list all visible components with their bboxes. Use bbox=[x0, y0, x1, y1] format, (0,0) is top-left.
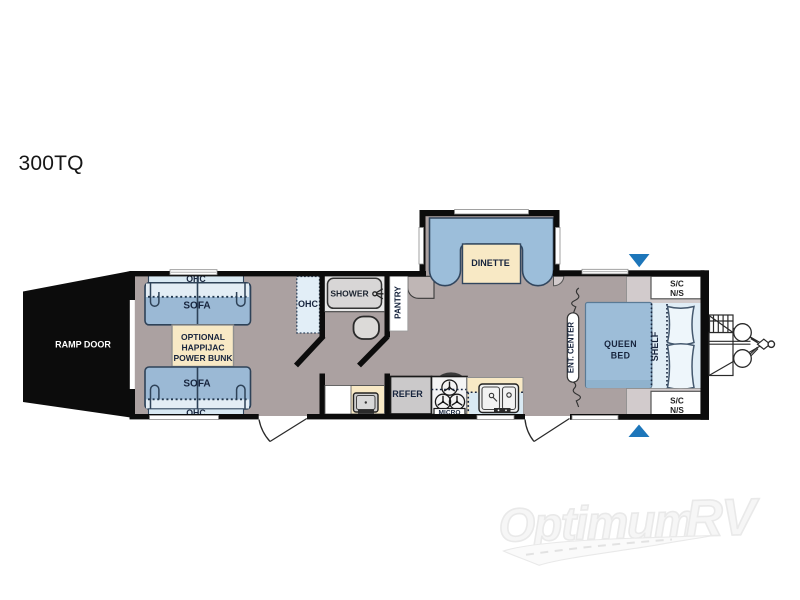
svg-text:HAPPIJAC: HAPPIJAC bbox=[182, 343, 225, 353]
svg-text:S/C: S/C bbox=[670, 279, 684, 288]
svg-text:ENT. CENTER: ENT. CENTER bbox=[567, 322, 576, 373]
svg-text:PANTRY: PANTRY bbox=[394, 286, 403, 319]
svg-text:RAMP DOOR: RAMP DOOR bbox=[55, 340, 111, 350]
svg-text:S/C: S/C bbox=[670, 396, 684, 405]
svg-text:N/S: N/S bbox=[670, 289, 684, 298]
svg-text:POWER BUNK: POWER BUNK bbox=[173, 353, 233, 363]
svg-text:N/S: N/S bbox=[670, 406, 684, 415]
svg-text:QUEEN: QUEEN bbox=[604, 339, 637, 349]
svg-text:BED: BED bbox=[611, 351, 630, 361]
svg-text:RV: RV bbox=[685, 488, 762, 548]
svg-text:SHOWER: SHOWER bbox=[330, 289, 368, 299]
svg-text:OPTIONAL: OPTIONAL bbox=[181, 332, 225, 342]
svg-text:SOFA: SOFA bbox=[183, 379, 210, 390]
svg-text:SHELF: SHELF bbox=[650, 331, 660, 361]
svg-text:REFER: REFER bbox=[392, 389, 423, 399]
svg-text:SOFA: SOFA bbox=[183, 301, 210, 312]
svg-text:300TQ: 300TQ bbox=[19, 152, 84, 175]
svg-text:OHC: OHC bbox=[298, 299, 319, 309]
svg-text:DINETTE: DINETTE bbox=[471, 258, 510, 268]
